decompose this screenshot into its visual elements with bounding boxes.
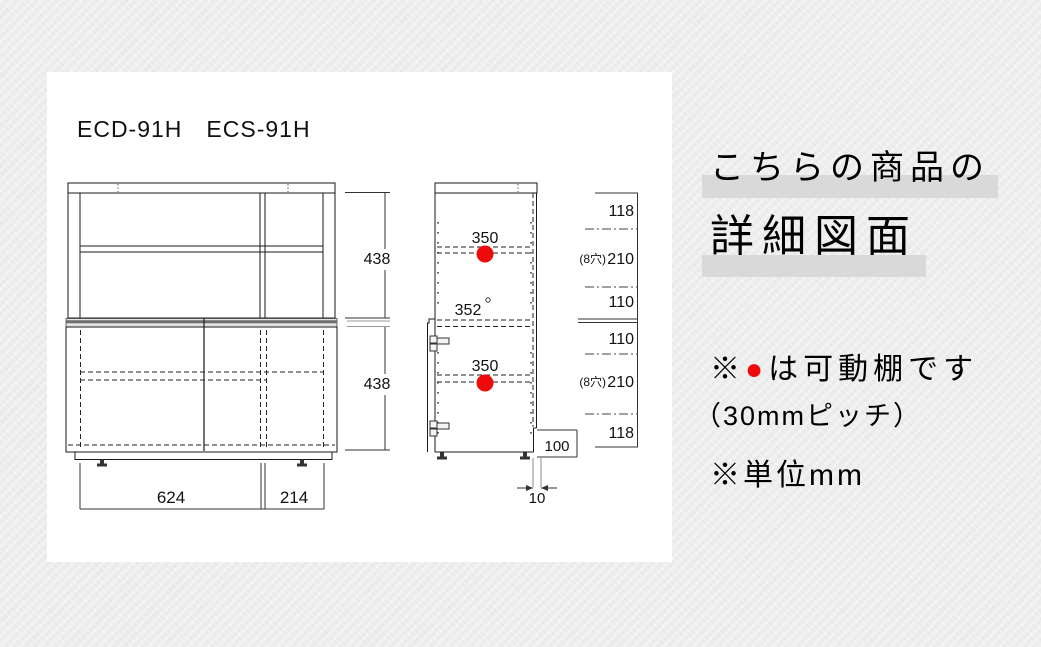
note-shelf-text: は可動棚です — [768, 353, 978, 386]
movable-shelf-dot-upper — [477, 246, 494, 263]
note-movable-shelf: ※●は可動棚です — [710, 344, 978, 388]
height-segments-dimensions — [578, 193, 638, 447]
note-unit: ※単位mm — [710, 450, 865, 494]
notch-depth-dim: 10 — [529, 490, 546, 507]
seg-dim-210-lower: 210 — [607, 374, 634, 391]
page: { "title": { "models": "ECD-91H ECS-91H"… — [0, 0, 1041, 647]
seg-dim-118-top: 118 — [608, 203, 634, 220]
notch-height-dim: 100 — [544, 438, 569, 455]
front-width-left-dim: 624 — [157, 488, 185, 507]
front-width-right-dim: 214 — [280, 488, 308, 507]
holes-label-lower: (8穴) — [579, 374, 606, 389]
front-upper-height-dim: 438 — [364, 251, 391, 268]
model-numbers: ECD-91H ECS-91H — [77, 110, 311, 144]
info-heading-line1: こちらの商品の — [710, 140, 990, 189]
red-shelf-bullet-icon: ● — [745, 353, 768, 386]
holes-label-upper: (8穴) — [579, 251, 606, 266]
movable-shelf-dot-lower — [477, 375, 494, 392]
technical-drawing: 438 438 624 214 — [47, 72, 672, 562]
side-upper-shelf-label: 350 — [472, 230, 499, 247]
note-pitch: （30mmピッチ） — [694, 394, 922, 433]
front-lower-height-dim: 438 — [364, 376, 391, 393]
info-heading-line2: 詳細図面 — [710, 200, 918, 264]
seg-dim-110-upper: 110 — [608, 294, 634, 311]
seg-dim-210-upper: 210 — [607, 251, 634, 268]
drawing-panel: ECD-91H ECS-91H — [47, 72, 672, 562]
front-feet — [97, 460, 307, 467]
note-prefix: ※ — [710, 353, 745, 386]
seg-dim-110-lower: 110 — [608, 331, 634, 348]
side-view — [428, 183, 538, 460]
side-mid-depth-label: 352 — [455, 302, 482, 319]
front-view — [66, 183, 337, 467]
side-lower-shelf-label: 350 — [472, 358, 499, 375]
seg-dim-118-bottom: 118 — [608, 425, 634, 442]
side-feet — [437, 453, 530, 460]
door-hinges — [430, 336, 449, 436]
